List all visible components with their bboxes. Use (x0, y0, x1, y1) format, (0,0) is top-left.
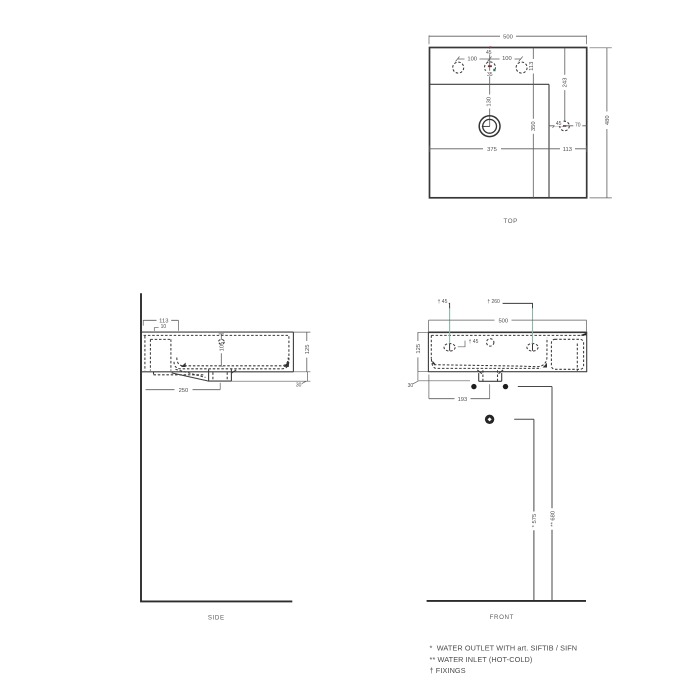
svg-text:* WATER OUTLET WITH art. SIFT: * WATER OUTLET WITH art. SIFTIB / SIFN (430, 643, 578, 652)
svg-text:113: 113 (529, 62, 535, 71)
svg-text:** 680: ** 680 (550, 511, 556, 527)
svg-text:45: 45 (486, 50, 492, 56)
svg-text:500: 500 (503, 35, 513, 41)
svg-text:** WATER INLET (HOT-COLD): ** WATER INLET (HOT-COLD) (430, 655, 533, 664)
svg-text:35: 35 (487, 72, 493, 78)
svg-text:105: 105 (219, 342, 225, 352)
svg-text:113: 113 (563, 147, 572, 153)
svg-text:350: 350 (531, 121, 537, 131)
svg-text:125: 125 (416, 344, 422, 354)
svg-text:243: 243 (563, 78, 569, 88)
svg-text:10: 10 (161, 324, 167, 330)
svg-text:30: 30 (408, 383, 414, 389)
svg-text:250: 250 (179, 388, 189, 394)
svg-text:* 575: * 575 (532, 514, 538, 528)
svg-text:† 45: † 45 (469, 339, 479, 345)
svg-text:45: 45 (556, 121, 562, 127)
svg-text:70: 70 (575, 122, 581, 128)
svg-text:† 45: † 45 (438, 299, 448, 305)
svg-text:125: 125 (305, 345, 311, 355)
svg-text:480: 480 (605, 115, 611, 125)
svg-text:† FIXINGS: † FIXINGS (430, 666, 466, 675)
svg-text:193: 193 (458, 397, 468, 403)
svg-text:30: 30 (296, 383, 302, 389)
svg-text:TOP: TOP (503, 218, 517, 225)
svg-text:500: 500 (498, 318, 508, 324)
svg-text:100: 100 (502, 56, 512, 62)
svg-text:† 260: † 260 (487, 299, 500, 305)
svg-text:FRONT: FRONT (490, 614, 514, 621)
svg-text:375: 375 (487, 147, 497, 153)
svg-text:100: 100 (467, 57, 477, 63)
svg-text:SIDE: SIDE (208, 615, 225, 622)
svg-text:130: 130 (487, 97, 493, 107)
